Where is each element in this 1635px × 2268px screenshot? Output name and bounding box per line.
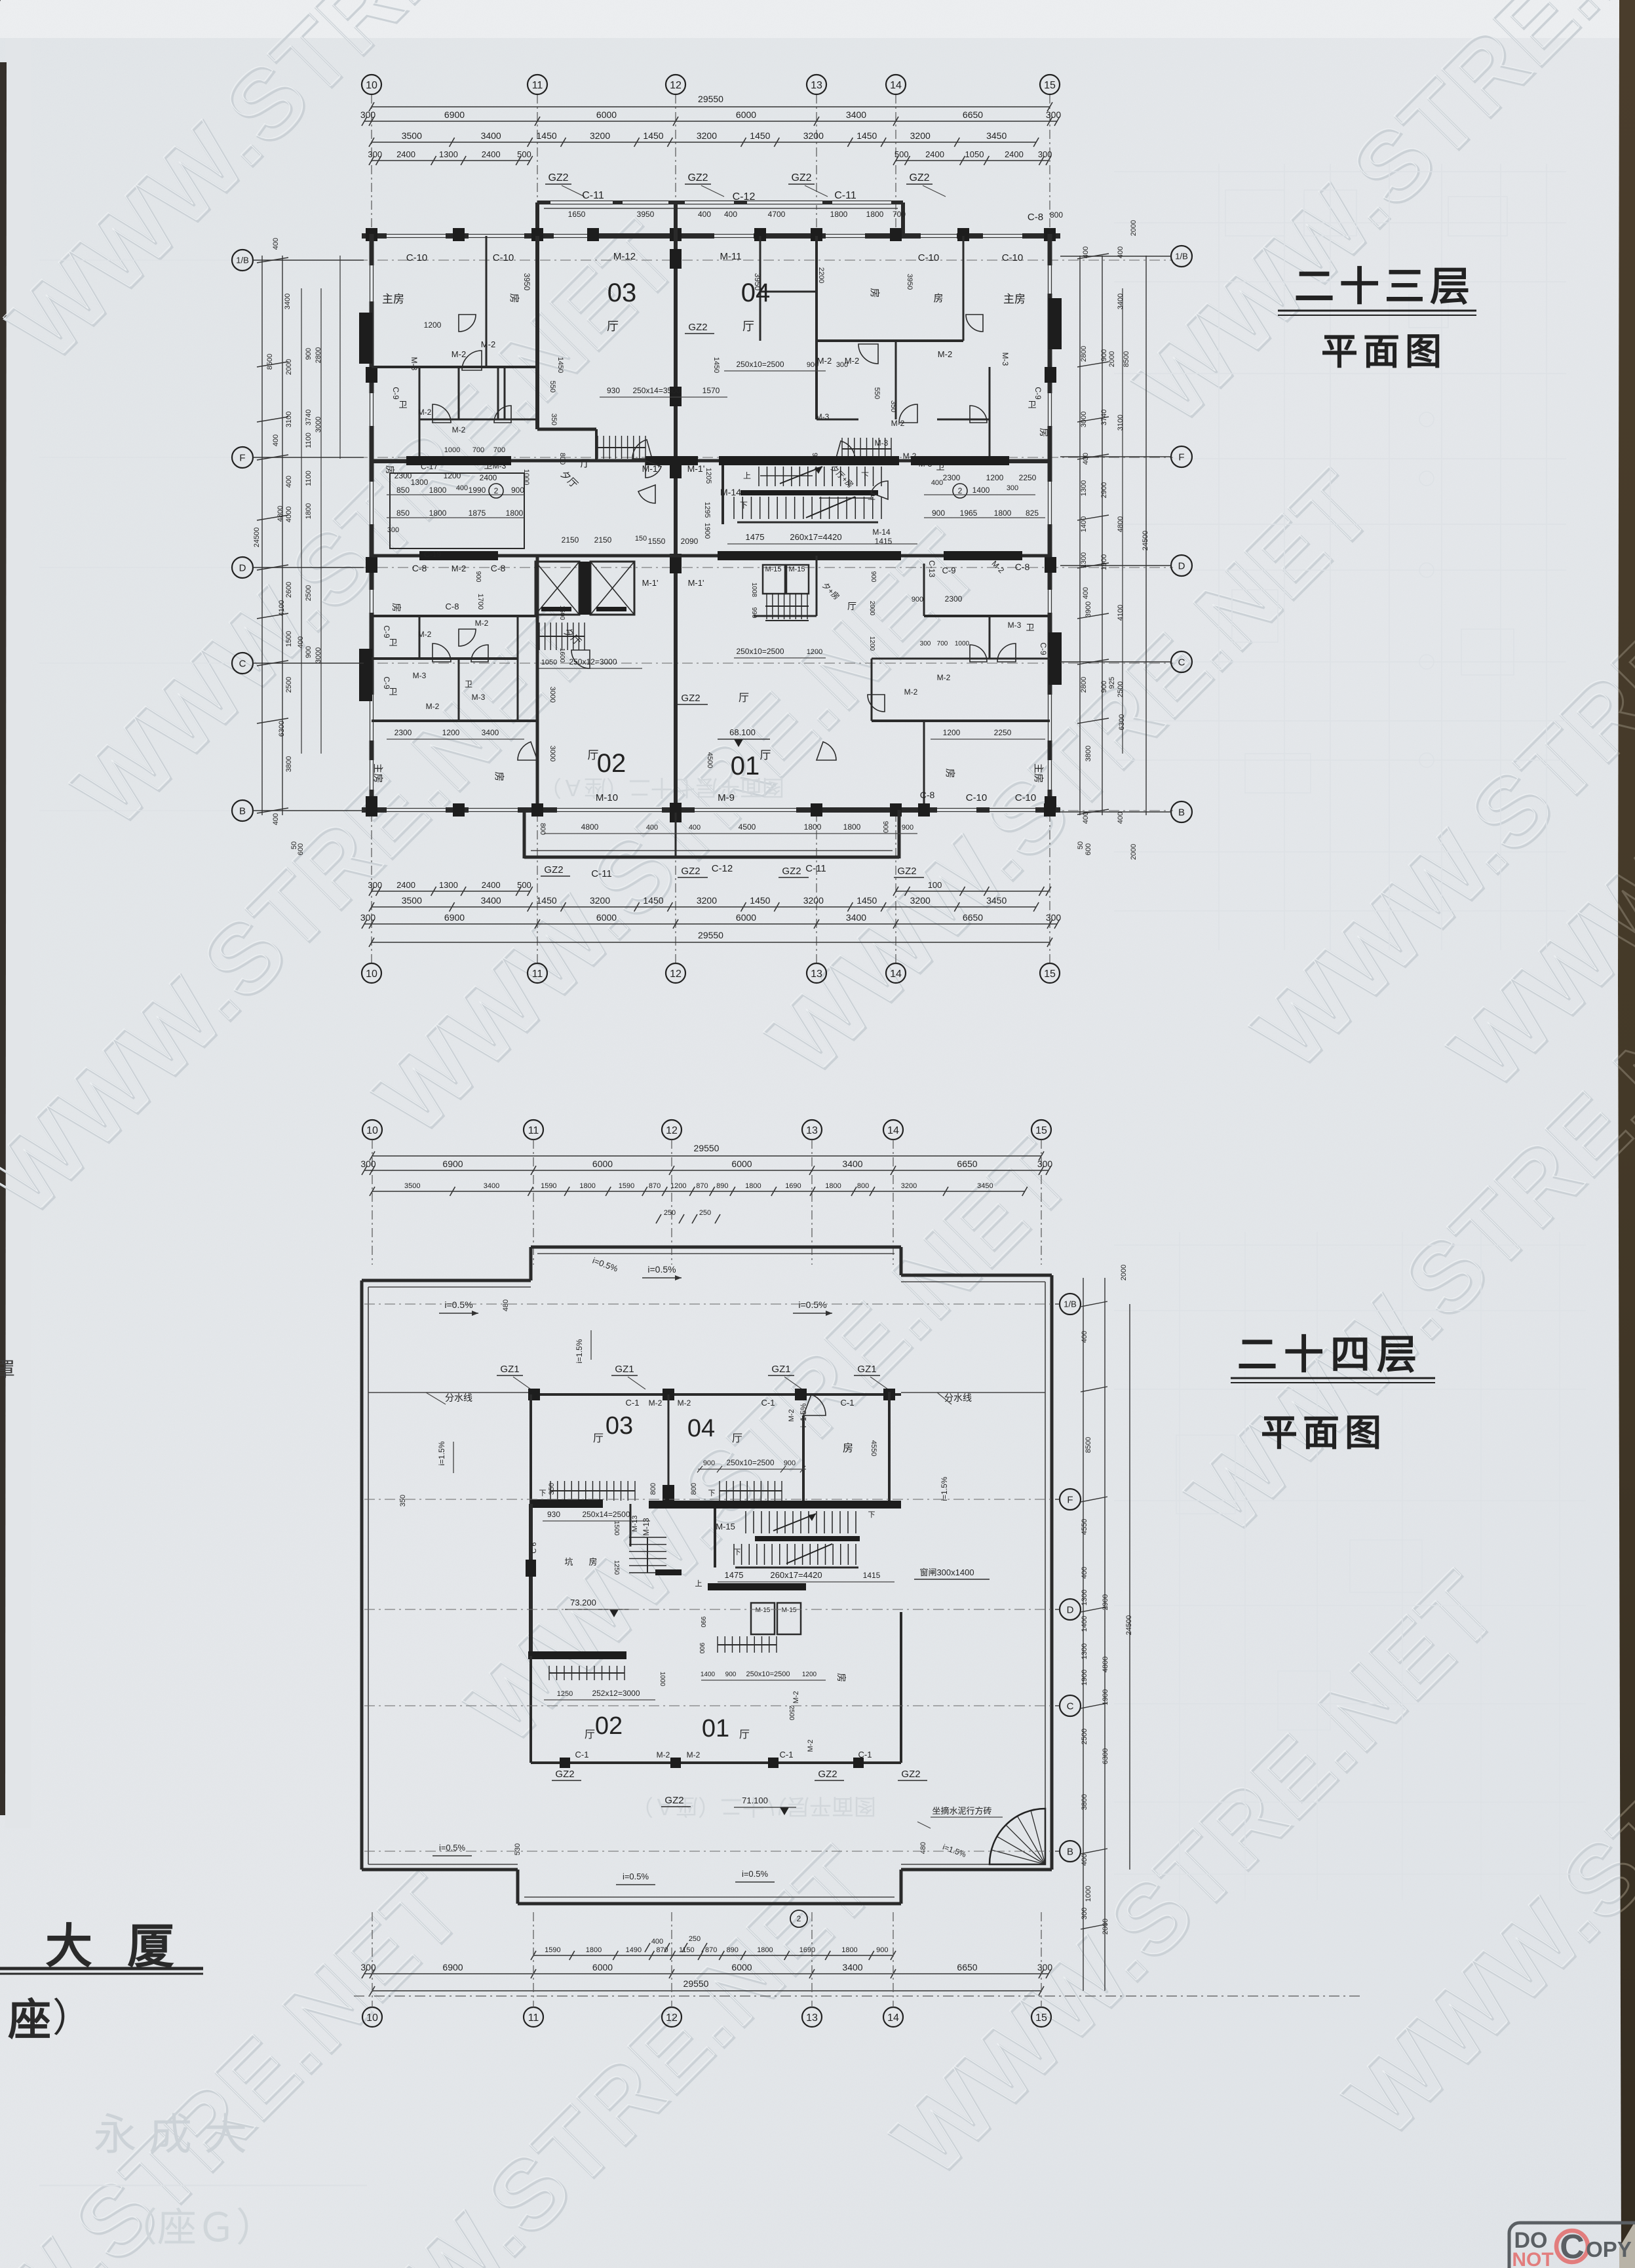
svg-text:M-2: M-2: [937, 673, 951, 682]
svg-text:C-9: C-9: [1039, 642, 1048, 655]
svg-text:1300: 1300: [1081, 1643, 1088, 1659]
svg-text:1800: 1800: [305, 503, 313, 519]
svg-text:4550: 4550: [870, 1440, 877, 1456]
svg-text:2250: 2250: [994, 728, 1012, 737]
svg-text:15: 15: [1035, 1125, 1047, 1136]
svg-text:6650: 6650: [957, 1962, 977, 1972]
svg-text:2: 2: [494, 486, 499, 495]
svg-text:1800: 1800: [866, 210, 884, 219]
svg-text:GZ2: GZ2: [681, 693, 700, 704]
svg-text:930: 930: [607, 386, 620, 395]
svg-text:260x17=4420: 260x17=4420: [770, 1570, 822, 1580]
svg-text:C-10: C-10: [406, 252, 428, 263]
svg-text:1000: 1000: [444, 446, 460, 454]
svg-text:400: 400: [456, 484, 468, 492]
svg-text:1250: 1250: [613, 1560, 620, 1575]
svg-text:2300: 2300: [943, 473, 961, 482]
svg-text:10: 10: [366, 1125, 378, 1136]
svg-text:2500: 2500: [1117, 682, 1125, 697]
svg-text:1690: 1690: [799, 1946, 815, 1954]
svg-text:C-11: C-11: [834, 190, 856, 201]
svg-text:400: 400: [689, 824, 701, 832]
svg-text:3100: 3100: [285, 412, 293, 427]
svg-text:M-2: M-2: [678, 1398, 691, 1408]
svg-text:15: 15: [1044, 969, 1056, 980]
svg-text:800: 800: [857, 1182, 869, 1190]
svg-text:C-8: C-8: [1015, 562, 1030, 572]
svg-text:4800: 4800: [1117, 516, 1125, 532]
svg-text:（座Ｇ）: （座Ｇ）: [118, 2206, 275, 2250]
svg-text:1008: 1008: [750, 583, 758, 598]
svg-text:480: 480: [502, 1299, 510, 1311]
svg-text:8500: 8500: [266, 354, 274, 370]
svg-text:M-15: M-15: [788, 566, 805, 573]
svg-text:GZ1: GZ1: [500, 1364, 519, 1375]
svg-text:F: F: [1178, 452, 1184, 463]
svg-text:3200: 3200: [910, 130, 931, 141]
svg-text:卫: 卫: [398, 400, 407, 410]
svg-text:3740: 3740: [305, 410, 313, 425]
svg-text:2800: 2800: [315, 347, 322, 363]
svg-text:250x14=3500: 250x14=3500: [632, 386, 680, 395]
svg-text:3950: 3950: [637, 210, 655, 219]
svg-text:300: 300: [368, 880, 382, 890]
svg-text:M-3: M-3: [1001, 353, 1010, 366]
svg-text:6000: 6000: [736, 109, 756, 120]
svg-text:400: 400: [1081, 1331, 1088, 1343]
svg-text:1570: 1570: [702, 386, 720, 395]
svg-text:400: 400: [285, 476, 293, 488]
svg-text:M-2: M-2: [475, 619, 489, 628]
svg-text:卫: 卫: [389, 638, 397, 647]
svg-text:800: 800: [558, 453, 566, 465]
svg-text:C-1: C-1: [761, 1398, 775, 1408]
svg-text:2400: 2400: [925, 149, 944, 159]
svg-text:厅: 厅: [593, 1433, 604, 1444]
svg-text:6000: 6000: [736, 912, 756, 923]
svg-text:1/B: 1/B: [236, 256, 249, 265]
svg-text:850: 850: [396, 509, 410, 518]
svg-text:252x12=3000: 252x12=3000: [592, 1689, 640, 1698]
svg-text:3200: 3200: [803, 130, 824, 141]
svg-text:M-2: M-2: [657, 1750, 670, 1759]
svg-text:房: 房: [843, 1442, 853, 1454]
svg-text:3740: 3740: [1100, 410, 1108, 425]
svg-text:厅: 厅: [607, 320, 619, 333]
svg-text:4100: 4100: [1117, 605, 1125, 621]
svg-text:M-2: M-2: [817, 356, 832, 366]
svg-text:1200: 1200: [986, 473, 1004, 482]
svg-text:4800: 4800: [277, 506, 284, 522]
svg-text:1450: 1450: [537, 895, 557, 906]
svg-text:1690: 1690: [785, 1182, 801, 1190]
svg-text:i=0.5%: i=0.5%: [444, 1299, 472, 1310]
svg-text:6000: 6000: [596, 912, 617, 923]
svg-text:3200: 3200: [910, 895, 931, 906]
svg-text:GZ2: GZ2: [555, 1769, 574, 1780]
svg-text:6000: 6000: [731, 1159, 752, 1169]
svg-text:4700: 4700: [768, 210, 786, 219]
svg-text:300: 300: [360, 1962, 376, 1972]
svg-text:1050: 1050: [541, 659, 557, 666]
svg-text:C-12: C-12: [712, 863, 733, 874]
svg-text:6900: 6900: [444, 109, 465, 120]
svg-text:6000: 6000: [731, 1962, 752, 1972]
svg-text:400: 400: [1081, 1854, 1088, 1866]
svg-text:2150: 2150: [562, 535, 579, 545]
svg-text:C-10: C-10: [493, 252, 514, 263]
svg-text:F: F: [239, 452, 245, 463]
svg-text:50: 50: [1077, 841, 1085, 849]
svg-text:29550: 29550: [683, 1978, 709, 1989]
svg-text:主房: 主房: [382, 293, 404, 305]
svg-text:300: 300: [360, 109, 376, 120]
svg-text:M-10: M-10: [596, 792, 618, 803]
svg-text:900: 900: [807, 361, 818, 369]
svg-text:1200: 1200: [943, 728, 961, 737]
svg-text:主房: 主房: [1033, 763, 1044, 783]
svg-text:卫: 卫: [389, 687, 397, 697]
svg-text:400: 400: [1117, 246, 1125, 258]
svg-text:1990: 1990: [469, 486, 486, 495]
svg-text:M-2: M-2: [904, 687, 918, 697]
svg-text:厦: 厦: [127, 1921, 174, 1973]
svg-text:M-2: M-2: [452, 349, 466, 359]
svg-text:1800: 1800: [825, 1182, 841, 1190]
svg-text:3200: 3200: [697, 895, 717, 906]
svg-text:1600: 1600: [558, 648, 566, 663]
svg-text:GZ2: GZ2: [818, 1769, 837, 1780]
svg-text:1300: 1300: [411, 478, 429, 487]
svg-text:D: D: [1178, 560, 1185, 571]
svg-text:1200: 1200: [807, 648, 822, 656]
svg-text:480: 480: [919, 1842, 927, 1854]
svg-text:12: 12: [666, 2012, 678, 2024]
svg-text:2400: 2400: [480, 473, 497, 482]
svg-text:300: 300: [360, 1159, 376, 1169]
svg-text:1800: 1800: [586, 1946, 602, 1954]
svg-text:3400: 3400: [481, 895, 501, 906]
svg-text:C-1: C-1: [626, 1398, 640, 1408]
svg-text:1450: 1450: [643, 130, 663, 141]
svg-text:14: 14: [887, 1125, 899, 1136]
svg-text:300: 300: [360, 912, 376, 923]
svg-text:厅: 厅: [739, 693, 749, 704]
svg-text:GZ1: GZ1: [857, 1364, 876, 1375]
svg-text:1450: 1450: [750, 895, 770, 906]
svg-text:i=1.5%: i=1.5%: [575, 1339, 584, 1363]
svg-text:1650: 1650: [568, 210, 586, 219]
svg-text:M-15: M-15: [756, 1607, 771, 1614]
svg-text:3800: 3800: [285, 756, 293, 772]
svg-text:1550: 1550: [648, 537, 666, 546]
svg-text:B: B: [239, 805, 246, 817]
svg-text:3400: 3400: [846, 109, 866, 120]
svg-text:M-15: M-15: [782, 1607, 797, 1614]
svg-text:1900: 1900: [1100, 554, 1108, 570]
svg-text:400: 400: [1082, 587, 1090, 599]
svg-text:1800: 1800: [830, 210, 848, 219]
svg-text:1400: 1400: [1080, 516, 1088, 532]
svg-text:13: 13: [806, 2012, 818, 2024]
svg-text:3400: 3400: [842, 1962, 862, 1972]
svg-text:3000: 3000: [315, 647, 322, 663]
svg-text:3400: 3400: [284, 294, 292, 309]
svg-text:4800: 4800: [581, 822, 599, 832]
svg-text:M-2: M-2: [807, 1740, 815, 1752]
svg-text:6300: 6300: [278, 721, 286, 737]
svg-text:房: 房: [588, 1557, 597, 1567]
svg-text:550: 550: [548, 381, 556, 393]
svg-text:700: 700: [893, 210, 906, 219]
svg-text:71.100: 71.100: [742, 1796, 768, 1805]
svg-text:C: C: [1560, 2228, 1585, 2266]
svg-text:350: 350: [889, 400, 897, 412]
svg-text:2400: 2400: [396, 880, 415, 890]
svg-text:C-1: C-1: [858, 1750, 872, 1759]
svg-text:4500: 4500: [739, 822, 756, 832]
svg-text:D: D: [239, 562, 246, 573]
svg-text:700: 700: [472, 446, 484, 454]
svg-text:3900: 3900: [1085, 602, 1092, 617]
svg-text:M-1': M-1': [688, 578, 704, 588]
svg-text:2000: 2000: [1108, 351, 1116, 367]
svg-text:530: 530: [514, 1843, 522, 1855]
svg-text:8500: 8500: [1085, 1437, 1092, 1453]
svg-text:1800: 1800: [579, 1182, 595, 1190]
svg-text:500: 500: [517, 880, 531, 890]
svg-text:400: 400: [1081, 1567, 1088, 1579]
svg-text:1800: 1800: [429, 486, 447, 495]
svg-text:900: 900: [305, 348, 313, 360]
svg-text:M-1': M-1': [687, 463, 705, 474]
svg-text:6000: 6000: [592, 1962, 613, 1972]
svg-text:3200: 3200: [901, 1182, 917, 1190]
svg-text:250: 250: [699, 1209, 711, 1217]
svg-text:平面图: 平面图: [1261, 1412, 1387, 1453]
svg-text:1415: 1415: [863, 1571, 881, 1580]
svg-text:260x17=4420: 260x17=4420: [790, 532, 841, 542]
svg-text:M-13: M-13: [642, 1518, 651, 1536]
svg-text:i=0.5%: i=0.5%: [742, 1869, 769, 1879]
svg-text:700: 700: [937, 640, 948, 647]
svg-text:1475: 1475: [725, 1570, 744, 1580]
svg-text:400: 400: [724, 210, 737, 219]
svg-text:1450: 1450: [856, 895, 877, 906]
svg-text:1800: 1800: [804, 822, 822, 832]
svg-text:400: 400: [1082, 812, 1090, 824]
svg-text:1450: 1450: [643, 895, 663, 906]
svg-text:1700: 1700: [476, 594, 484, 609]
svg-text:900: 900: [725, 1671, 737, 1678]
svg-text:1205: 1205: [704, 468, 712, 484]
svg-text:C-8: C-8: [1028, 212, 1043, 223]
svg-text:平面图: 平面图: [1321, 331, 1447, 372]
svg-text:C: C: [1067, 1701, 1074, 1712]
svg-text:C-9: C-9: [1033, 387, 1043, 400]
svg-text:M-14: M-14: [720, 487, 741, 497]
svg-text:1300: 1300: [439, 880, 458, 890]
svg-text:1875: 1875: [469, 509, 486, 518]
svg-text:2900: 2900: [1102, 1594, 1109, 1610]
svg-text:下: 下: [740, 501, 748, 510]
svg-text:6300: 6300: [1102, 1748, 1109, 1764]
svg-text:01: 01: [702, 1715, 729, 1742]
svg-text:M-2: M-2: [938, 349, 952, 359]
svg-text:i=0.5%: i=0.5%: [647, 1264, 676, 1275]
svg-text:250x10=2500: 250x10=2500: [746, 1670, 790, 1678]
svg-text:1400: 1400: [1081, 1616, 1088, 1632]
svg-text:12: 12: [666, 1125, 678, 1136]
svg-text:10: 10: [366, 969, 377, 980]
svg-text:900: 900: [881, 821, 889, 833]
svg-text:2500: 2500: [1081, 1729, 1088, 1744]
svg-text:870: 870: [649, 1182, 661, 1190]
svg-text:上: 上: [743, 471, 751, 480]
svg-text:3400: 3400: [482, 728, 499, 737]
svg-text:3400: 3400: [842, 1159, 862, 1169]
svg-text:房: 房: [391, 603, 402, 612]
svg-text:1200: 1200: [442, 728, 460, 737]
svg-text:2000: 2000: [1130, 844, 1138, 860]
svg-text:03: 03: [606, 1412, 633, 1440]
svg-text:OPY: OPY: [1586, 2237, 1632, 2261]
svg-text:GZ2: GZ2: [901, 1769, 920, 1780]
svg-text:M-1': M-1': [642, 578, 659, 588]
svg-text:300: 300: [1037, 1159, 1053, 1169]
svg-text:900: 900: [902, 824, 914, 832]
svg-text:800: 800: [690, 1483, 698, 1495]
svg-text:900: 900: [876, 1946, 888, 1954]
svg-text:1450: 1450: [750, 130, 770, 141]
svg-text:2000: 2000: [1102, 1919, 1109, 1934]
svg-text:2800: 2800: [1080, 346, 1088, 362]
svg-text:12: 12: [670, 969, 682, 980]
svg-text:500: 500: [894, 149, 909, 159]
svg-text:罩: 罩: [0, 1359, 15, 1381]
svg-text:900: 900: [1100, 349, 1108, 361]
svg-text:厅: 厅: [847, 601, 856, 611]
svg-text:坐摘水泥行方砖: 坐摘水泥行方砖: [932, 1806, 991, 1816]
svg-text:M-15: M-15: [716, 1522, 735, 1531]
svg-text:2500: 2500: [285, 677, 293, 693]
svg-text:1/B: 1/B: [1175, 252, 1188, 261]
svg-text:C-1: C-1: [780, 1750, 794, 1759]
svg-text:M-11: M-11: [720, 251, 741, 262]
svg-text:2500: 2500: [788, 1706, 795, 1721]
svg-text:1590: 1590: [545, 1946, 560, 1954]
svg-text:4500: 4500: [706, 752, 714, 768]
svg-text:02: 02: [597, 749, 626, 778]
svg-text:3500: 3500: [402, 130, 422, 141]
svg-text:房: 房: [944, 768, 955, 778]
svg-text:29550: 29550: [698, 94, 723, 104]
svg-text:C-10: C-10: [918, 252, 940, 263]
svg-text:2: 2: [797, 1914, 801, 1923]
svg-text:400: 400: [272, 813, 280, 825]
svg-text:12: 12: [670, 80, 682, 91]
svg-text:卫: 卫: [1028, 400, 1036, 410]
svg-text:2000: 2000: [1120, 1265, 1128, 1280]
svg-text:1590: 1590: [619, 1182, 634, 1190]
svg-text:M-3: M-3: [472, 693, 486, 702]
svg-text:800: 800: [1050, 210, 1063, 220]
svg-text:座: 座: [8, 1995, 51, 2044]
svg-text:900: 900: [703, 1459, 715, 1467]
svg-text:300: 300: [1038, 149, 1052, 159]
svg-text:4000: 4000: [285, 507, 293, 522]
svg-text:1900: 1900: [1102, 1689, 1109, 1705]
svg-text:M-12: M-12: [613, 251, 636, 262]
svg-text:M-2: M-2: [891, 419, 905, 428]
svg-text:C: C: [1178, 657, 1185, 668]
svg-text:M-2: M-2: [481, 339, 495, 349]
svg-text:100: 100: [928, 880, 942, 890]
svg-text:3450: 3450: [977, 1182, 993, 1190]
svg-text:1900: 1900: [1081, 1670, 1088, 1685]
svg-text:1300: 1300: [1080, 552, 1088, 568]
svg-text:C-10: C-10: [1002, 252, 1024, 263]
svg-text:2900: 2900: [1100, 482, 1108, 498]
svg-text:2600: 2600: [285, 582, 293, 598]
svg-text:800: 800: [649, 1483, 657, 1495]
svg-text:M-3: M-3: [1008, 621, 1022, 630]
svg-text:主房: 主房: [1003, 293, 1026, 305]
svg-text:）: ）: [52, 1996, 92, 2040]
svg-text:1200: 1200: [424, 320, 442, 330]
svg-text:3200: 3200: [803, 895, 824, 906]
svg-text:6900: 6900: [442, 1159, 463, 1169]
svg-text:29550: 29550: [698, 930, 723, 940]
svg-text:1900: 1900: [703, 523, 711, 539]
svg-text:4100: 4100: [278, 600, 286, 616]
svg-text:930: 930: [547, 1510, 560, 1519]
svg-text:GZ2: GZ2: [664, 1795, 683, 1806]
svg-text:M-2: M-2: [649, 1398, 663, 1408]
svg-text:300: 300: [1007, 484, 1018, 492]
svg-text:900: 900: [1100, 681, 1108, 693]
svg-text:1965: 1965: [960, 509, 978, 518]
svg-text:4550: 4550: [1081, 1519, 1088, 1535]
svg-text:3200: 3200: [697, 130, 717, 141]
svg-text:永 成 大: 永 成 大: [94, 2110, 248, 2159]
svg-text:i=0.5%: i=0.5%: [798, 1299, 826, 1310]
svg-text:870: 870: [696, 1182, 708, 1190]
svg-text:C-1: C-1: [841, 1398, 855, 1408]
svg-text:C-11: C-11: [582, 190, 604, 201]
svg-text:C-1: C-1: [575, 1750, 589, 1759]
svg-text:990: 990: [699, 1617, 706, 1628]
svg-text:1800: 1800: [994, 509, 1012, 518]
svg-text:400: 400: [1117, 812, 1125, 824]
svg-text:房: 房: [493, 771, 505, 781]
svg-text:900: 900: [698, 1643, 705, 1654]
svg-text:1200: 1200: [868, 636, 875, 651]
svg-text:6650: 6650: [963, 912, 983, 923]
svg-text:M-2: M-2: [418, 408, 432, 417]
svg-text:1250: 1250: [557, 1690, 573, 1698]
svg-text:3800: 3800: [1081, 1794, 1088, 1810]
svg-text:3000: 3000: [1080, 412, 1088, 427]
svg-text:3200: 3200: [590, 895, 610, 906]
svg-text:GZ2: GZ2: [909, 172, 929, 183]
svg-text:15: 15: [1044, 80, 1056, 91]
svg-text:1100: 1100: [305, 471, 313, 486]
svg-text:600: 600: [1085, 843, 1092, 855]
svg-text:2000: 2000: [1130, 220, 1138, 236]
svg-text:3400: 3400: [846, 912, 866, 923]
svg-text:4800: 4800: [1102, 1657, 1109, 1672]
